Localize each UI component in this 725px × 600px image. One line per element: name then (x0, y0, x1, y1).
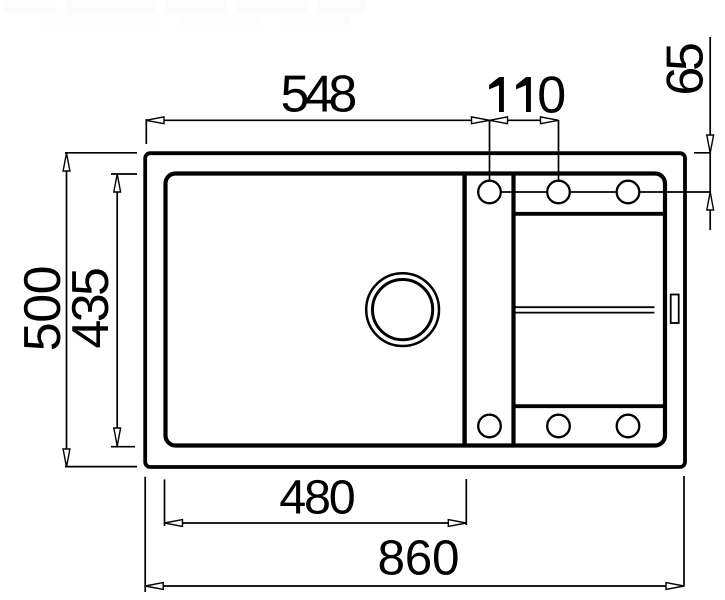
svg-text:0: 0 (537, 67, 566, 125)
svg-text:480: 480 (279, 471, 355, 525)
svg-text:435: 435 (62, 269, 120, 349)
svg-text:65: 65 (656, 44, 714, 96)
svg-text:860: 860 (378, 531, 460, 586)
svg-text:548: 548 (281, 66, 356, 124)
